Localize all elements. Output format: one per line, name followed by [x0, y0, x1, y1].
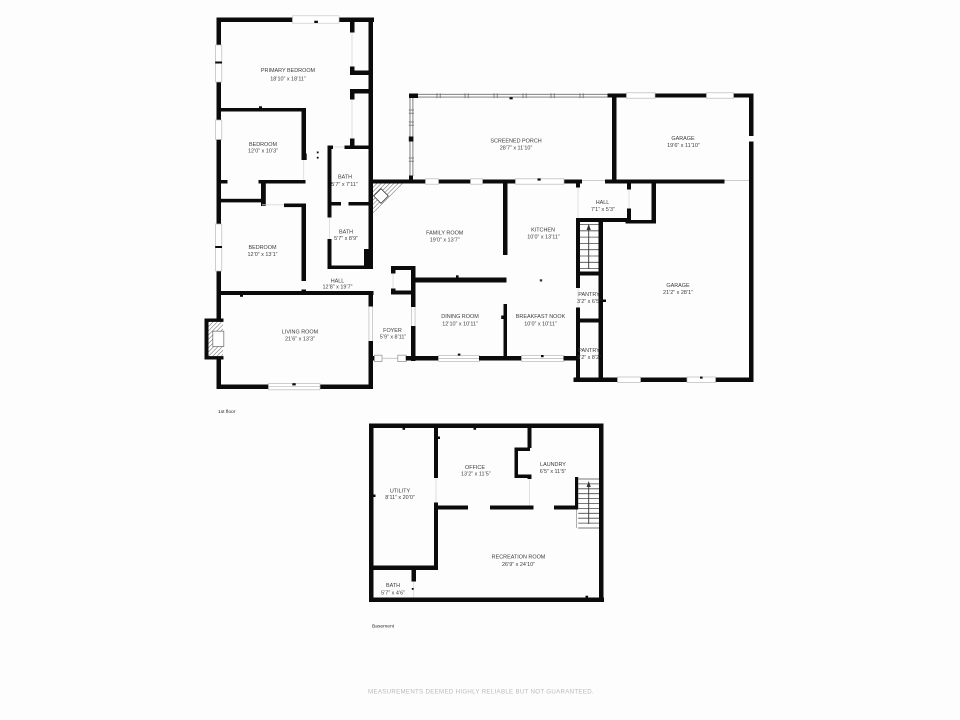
svg-text:MEASUREMENTS DEEMED HIGHLY REL: MEASUREMENTS DEEMED HIGHLY RELIABLE BUT …: [368, 689, 594, 696]
svg-text:BEDROOM: BEDROOM: [248, 245, 277, 251]
svg-text:3’2” x 6’5”: 3’2” x 6’5”: [577, 299, 601, 305]
svg-text:SCREENED PORCH: SCREENED PORCH: [490, 139, 541, 145]
svg-text:FOYER: FOYER: [383, 328, 402, 334]
svg-text:GARAGE: GARAGE: [666, 283, 690, 289]
svg-text:BATH: BATH: [386, 583, 400, 589]
svg-text:PANTRY: PANTRY: [578, 292, 600, 298]
svg-text:7’1” x 5’3”: 7’1” x 5’3”: [591, 207, 615, 213]
svg-text:12’0” x 13’1”: 12’0” x 13’1”: [248, 252, 278, 258]
svg-text:28’7” x 11’10”: 28’7” x 11’10”: [500, 145, 533, 151]
svg-text:21’6” x 13’3”: 21’6” x 13’3”: [285, 337, 315, 343]
svg-text:BATH: BATH: [338, 175, 352, 181]
svg-text:LAUNDRY: LAUNDRY: [540, 462, 566, 468]
svg-text:1st floor: 1st floor: [218, 409, 236, 415]
svg-text:BREAKFAST NOOK: BREAKFAST NOOK: [516, 314, 566, 320]
svg-text:GARAGE: GARAGE: [671, 136, 695, 142]
svg-text:13’2” x 11’5”: 13’2” x 11’5”: [461, 472, 491, 478]
svg-text:26’9” x 24’10”: 26’9” x 24’10”: [502, 562, 535, 568]
svg-text:19’6” x 11’10”: 19’6” x 11’10”: [667, 143, 700, 149]
svg-text:BEDROOM: BEDROOM: [249, 142, 278, 148]
svg-text:19’0” x 13’7”: 19’0” x 13’7”: [430, 237, 460, 243]
svg-text:5’7” x 4’6”: 5’7” x 4’6”: [381, 591, 405, 597]
svg-text:FAMILY ROOM: FAMILY ROOM: [426, 231, 464, 237]
svg-text:KITCHEN: KITCHEN: [531, 228, 555, 234]
svg-text:HALL: HALL: [596, 200, 610, 206]
svg-text:12’0” x 10’3”: 12’0” x 10’3”: [248, 149, 278, 155]
svg-text:18’10” x 18’11”: 18’10” x 18’11”: [270, 76, 306, 82]
svg-text:10’0” x 10’11”: 10’0” x 10’11”: [524, 322, 557, 328]
svg-text:LIVING ROOM: LIVING ROOM: [282, 330, 319, 336]
svg-text:8’11” x 20’0”: 8’11” x 20’0”: [385, 495, 415, 501]
svg-text:3’2” x 8’2”: 3’2” x 8’2”: [577, 355, 601, 361]
svg-text:DINING ROOM: DINING ROOM: [441, 314, 479, 320]
svg-text:5’7” x 8’9”: 5’7” x 8’9”: [334, 236, 358, 242]
svg-text:Basement: Basement: [372, 624, 395, 630]
svg-text:12’10” x 10’11”: 12’10” x 10’11”: [442, 322, 478, 328]
svg-text:12’8” x 19’7”: 12’8” x 19’7”: [323, 285, 353, 291]
svg-text:PANTRY: PANTRY: [578, 348, 600, 354]
svg-text:5’9” x 8’11”: 5’9” x 8’11”: [380, 335, 407, 341]
svg-text:5’7” x 7’11”: 5’7” x 7’11”: [331, 182, 358, 188]
svg-text:RECREATION ROOM: RECREATION ROOM: [492, 555, 546, 561]
svg-text:10’0” x 13’11”: 10’0” x 13’11”: [527, 235, 560, 241]
svg-text:OFFICE: OFFICE: [465, 465, 485, 471]
svg-text:21’2” x 28’1”: 21’2” x 28’1”: [663, 290, 693, 296]
svg-text:PRIMARY BEDROOM: PRIMARY BEDROOM: [261, 68, 316, 74]
svg-text:UTILITY: UTILITY: [390, 489, 411, 495]
svg-text:BATH: BATH: [339, 230, 353, 236]
svg-text:6’5” x 11’5”: 6’5” x 11’5”: [540, 469, 567, 475]
